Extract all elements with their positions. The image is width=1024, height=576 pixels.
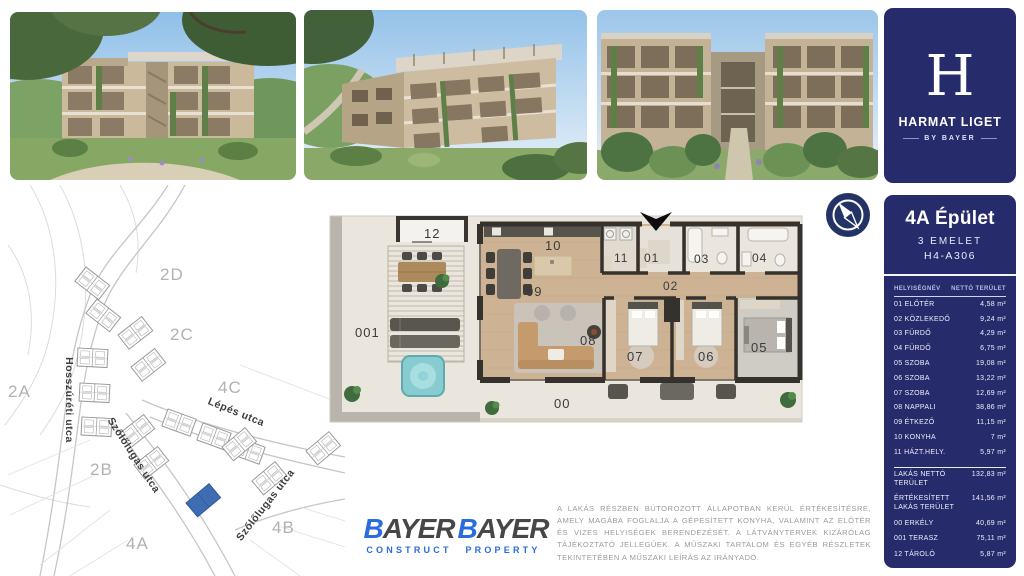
- summary-name: 001 TERASZ: [894, 535, 938, 544]
- room-name: 04 FÜRDŐ: [894, 345, 931, 352]
- column-room-name: HELYISÉGNÉV: [894, 286, 941, 292]
- room-area: 9,24 m²: [980, 316, 1006, 323]
- bayer-construct-logo: BAYER CONSTRUCT: [363, 516, 455, 555]
- table-row: 05 SZOBA19,08 m²: [894, 356, 1006, 371]
- table-row: 11 HÁZT.HELY.5,97 m²: [894, 445, 1006, 460]
- brand-panel: H HARMAT LIGET BY BAYER: [884, 8, 1016, 183]
- brand-subtitle-text: BY BAYER: [924, 135, 975, 142]
- building-title: 4A Épület: [884, 208, 1016, 230]
- room-label-08: 08: [580, 333, 596, 348]
- summary-name: ÉRTÉKESÍTETT LAKÁS TERÜLET: [894, 495, 968, 513]
- summary-name: 00 ERKÉLY: [894, 520, 934, 529]
- room-name: 03 FÜRDŐ: [894, 330, 931, 337]
- room-label-10: 10: [545, 238, 561, 253]
- map-highlighted-building: [186, 484, 221, 517]
- room-area: 4,29 m²: [980, 330, 1006, 337]
- render-photo-courtyard-view: [597, 10, 878, 180]
- summary-area: 75,11 m²: [976, 535, 1006, 542]
- room-label-001: 001: [355, 325, 380, 340]
- map-area-label-4a: 4A: [126, 534, 149, 553]
- room-name: 11 HÁZT.HELY.: [894, 449, 945, 456]
- bayer-property-wordmark: BAYER: [458, 516, 549, 543]
- bayer-construct-subtitle: CONSTRUCT: [366, 545, 451, 555]
- summary-table: LAKÁS NETTÓ TERÜLET132,83 m² ÉRTÉKESÍTET…: [884, 468, 1016, 563]
- area-table: HELYISÉGNÉV NETTÓ TERÜLET 01 ELŐTÉR4,58 …: [884, 286, 1016, 460]
- bayer-property-logo: BAYER PROPERTY: [457, 516, 549, 555]
- map-area-label-2a: 2A: [8, 382, 31, 401]
- disclaimer-text: A LAKÁS RÉSZBEN BÚTOROZOTT ÁLLAPOTBAN KE…: [557, 503, 871, 564]
- map-roads: [40, 185, 345, 576]
- room-name: 02 KÖZLEKEDŐ: [894, 316, 950, 323]
- summary-area: 5,87 m²: [980, 551, 1006, 558]
- render-photo-corner-view: [304, 10, 587, 180]
- hot-tub: [402, 356, 444, 396]
- floor-label: 3 EMELET: [884, 236, 1016, 247]
- bayer-property-subtitle: PROPERTY: [465, 545, 540, 555]
- room-label-01: 01: [644, 251, 659, 265]
- table-row: 04 FÜRDŐ6,75 m²: [894, 341, 1006, 356]
- table-row: 02 KÖZLEKEDŐ9,24 m²: [894, 312, 1006, 327]
- room-label-05: 05: [751, 340, 767, 355]
- summary-row: 001 TERASZ75,11 m²: [894, 532, 1006, 548]
- flyer-page: H HARMAT LIGET BY BAYER 4A Épület 3 EMEL…: [0, 0, 1024, 576]
- table-row: 10 KONYHA7 m²: [894, 430, 1006, 445]
- subtitle-rule-left: [903, 138, 919, 139]
- room-area: 4,58 m²: [980, 301, 1006, 308]
- room-name: 01 ELŐTÉR: [894, 301, 934, 308]
- summary-row: 00 ERKÉLY40,69 m²: [894, 516, 1006, 532]
- room-label-03: 03: [694, 252, 709, 266]
- summary-row: ÉRTÉKESÍTETT LAKÁS TERÜLET141,56 m²: [894, 492, 1006, 516]
- table-row: 09 ÉTKEZŐ11,15 m²: [894, 415, 1006, 430]
- room-area: 38,86 m²: [976, 404, 1006, 411]
- unit-info-panel: 4A Épület 3 EMELET H4-A306 HELYISÉGNÉV N…: [884, 195, 1016, 568]
- table-row: 01 ELŐTÉR4,58 m²: [894, 297, 1006, 312]
- map-buildings: [75, 267, 341, 517]
- brand-title: HARMAT LIGET: [898, 115, 1001, 129]
- map-parcel-lines: [8, 365, 345, 576]
- map-area-label-2c: 2C: [170, 325, 194, 344]
- summary-row: 12 TÁROLÓ5,87 m²: [894, 547, 1006, 563]
- summary-area: 40,69 m²: [976, 520, 1006, 527]
- brand-subtitle: BY BAYER: [903, 135, 996, 142]
- room-name: 07 SZOBA: [894, 390, 930, 397]
- map-area-label-4c: 4C: [218, 378, 242, 397]
- room-name: 06 SZOBA: [894, 375, 930, 382]
- room-label-04: 04: [752, 251, 767, 265]
- table-row: 08 NAPPALI38,86 m²: [894, 400, 1006, 415]
- area-table-header: HELYISÉGNÉV NETTÓ TERÜLET: [894, 286, 1006, 297]
- brand-monogram: H: [926, 49, 975, 105]
- room-label-02: 02: [663, 279, 678, 293]
- panel-divider-top: [884, 274, 1016, 276]
- room-area: 5,97 m²: [980, 449, 1006, 456]
- render-illustration-3: [597, 10, 878, 180]
- floor-plan: 12 10 09 11 01 02 03 04 08 07 06 05 001 …: [322, 210, 804, 432]
- room-label-06: 06: [698, 349, 714, 364]
- map-area-label-2b: 2B: [90, 460, 113, 479]
- summary-area: 132,83 m²: [972, 471, 1006, 478]
- compass-icon: [825, 192, 871, 238]
- map-area-label-2d: 2D: [160, 265, 184, 284]
- room-area: 12,69 m²: [976, 390, 1006, 397]
- room-area: 11,15 m²: [976, 419, 1006, 426]
- table-row: 03 FÜRDŐ4,29 m²: [894, 327, 1006, 342]
- room-label-07: 07: [627, 349, 643, 364]
- balcony-furniture: [608, 383, 736, 400]
- room-name: 10 KONYHA: [894, 434, 936, 441]
- table-row: 06 SZOBA13,22 m²: [894, 371, 1006, 386]
- column-net-area: NETTÓ TERÜLET: [951, 286, 1006, 292]
- render-illustration-2: [304, 10, 587, 180]
- summary-name: LAKÁS NETTÓ TERÜLET: [894, 471, 968, 489]
- room-area: 13,22 m²: [976, 375, 1006, 382]
- map-street-hosszureti: Hosszúréti utca: [63, 357, 75, 443]
- room-area: 7 m²: [991, 434, 1006, 441]
- table-row: 07 SZOBA12,69 m²: [894, 386, 1006, 401]
- render-photo-garden-view: [10, 12, 296, 180]
- map-street-lepes: Lépés utca: [206, 395, 266, 429]
- site-map: 2D 2C 2A 4C 2B 4A 4B Hosszúréti utca Lép…: [0, 185, 345, 576]
- room-label-11: 11: [614, 251, 628, 265]
- room-label-00: 00: [554, 396, 570, 411]
- bayer-construct-wordmark: BAYER: [364, 516, 455, 543]
- map-area-label-4b: 4B: [272, 518, 295, 537]
- room-area: 19,08 m²: [976, 360, 1006, 367]
- render-illustration-1: [10, 12, 296, 180]
- summary-name: 12 TÁROLÓ: [894, 551, 935, 560]
- room-label-09: 09: [526, 284, 542, 299]
- summary-area: 141,56 m²: [972, 495, 1006, 502]
- unit-code: H4-A306: [884, 250, 1016, 262]
- room-area: 6,75 m²: [980, 345, 1006, 352]
- room-name: 09 ÉTKEZŐ: [894, 419, 934, 426]
- summary-row: LAKÁS NETTÓ TERÜLET132,83 m²: [894, 468, 1006, 492]
- room-name: 08 NAPPALI: [894, 404, 936, 411]
- room-name: 05 SZOBA: [894, 360, 930, 367]
- subtitle-rule-right: [981, 138, 997, 139]
- room-label-12: 12: [424, 226, 440, 241]
- map-contour-lines: [0, 185, 138, 507]
